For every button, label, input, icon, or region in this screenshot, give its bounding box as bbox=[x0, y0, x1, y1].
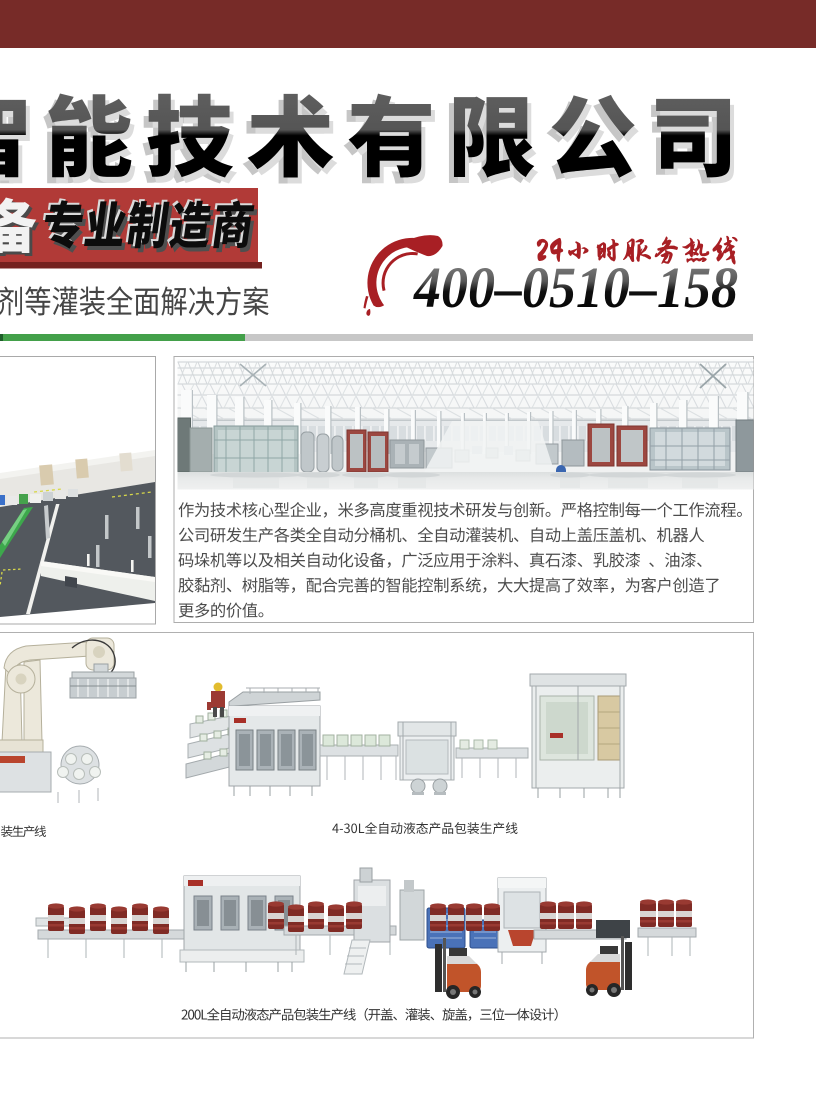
svg-text:400–0510–158: 400–0510–158 bbox=[413, 255, 738, 320]
